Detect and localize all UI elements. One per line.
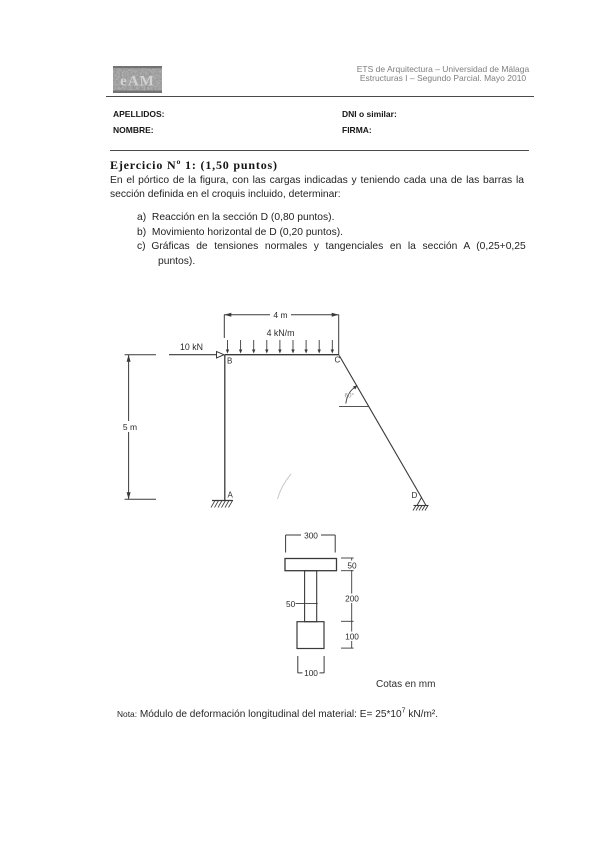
- svg-text:C: C: [335, 356, 341, 365]
- svg-text:10 kN: 10 kN: [180, 342, 203, 352]
- svg-text:100: 100: [304, 668, 318, 678]
- svg-text:4 kN/m: 4 kN/m: [267, 328, 295, 338]
- svg-text:4 m: 4 m: [273, 310, 287, 320]
- svg-text:B: B: [227, 357, 232, 366]
- svg-text:100: 100: [345, 632, 359, 642]
- svg-text:200: 200: [345, 594, 359, 604]
- svg-text:A: A: [228, 491, 234, 500]
- svg-text:50: 50: [286, 599, 296, 609]
- svg-text:D: D: [412, 491, 418, 500]
- svg-text:50: 50: [347, 561, 357, 571]
- svg-text:60°: 60°: [345, 392, 355, 400]
- svg-text:300: 300: [304, 530, 318, 540]
- svg-text:5 m: 5 m: [123, 422, 137, 432]
